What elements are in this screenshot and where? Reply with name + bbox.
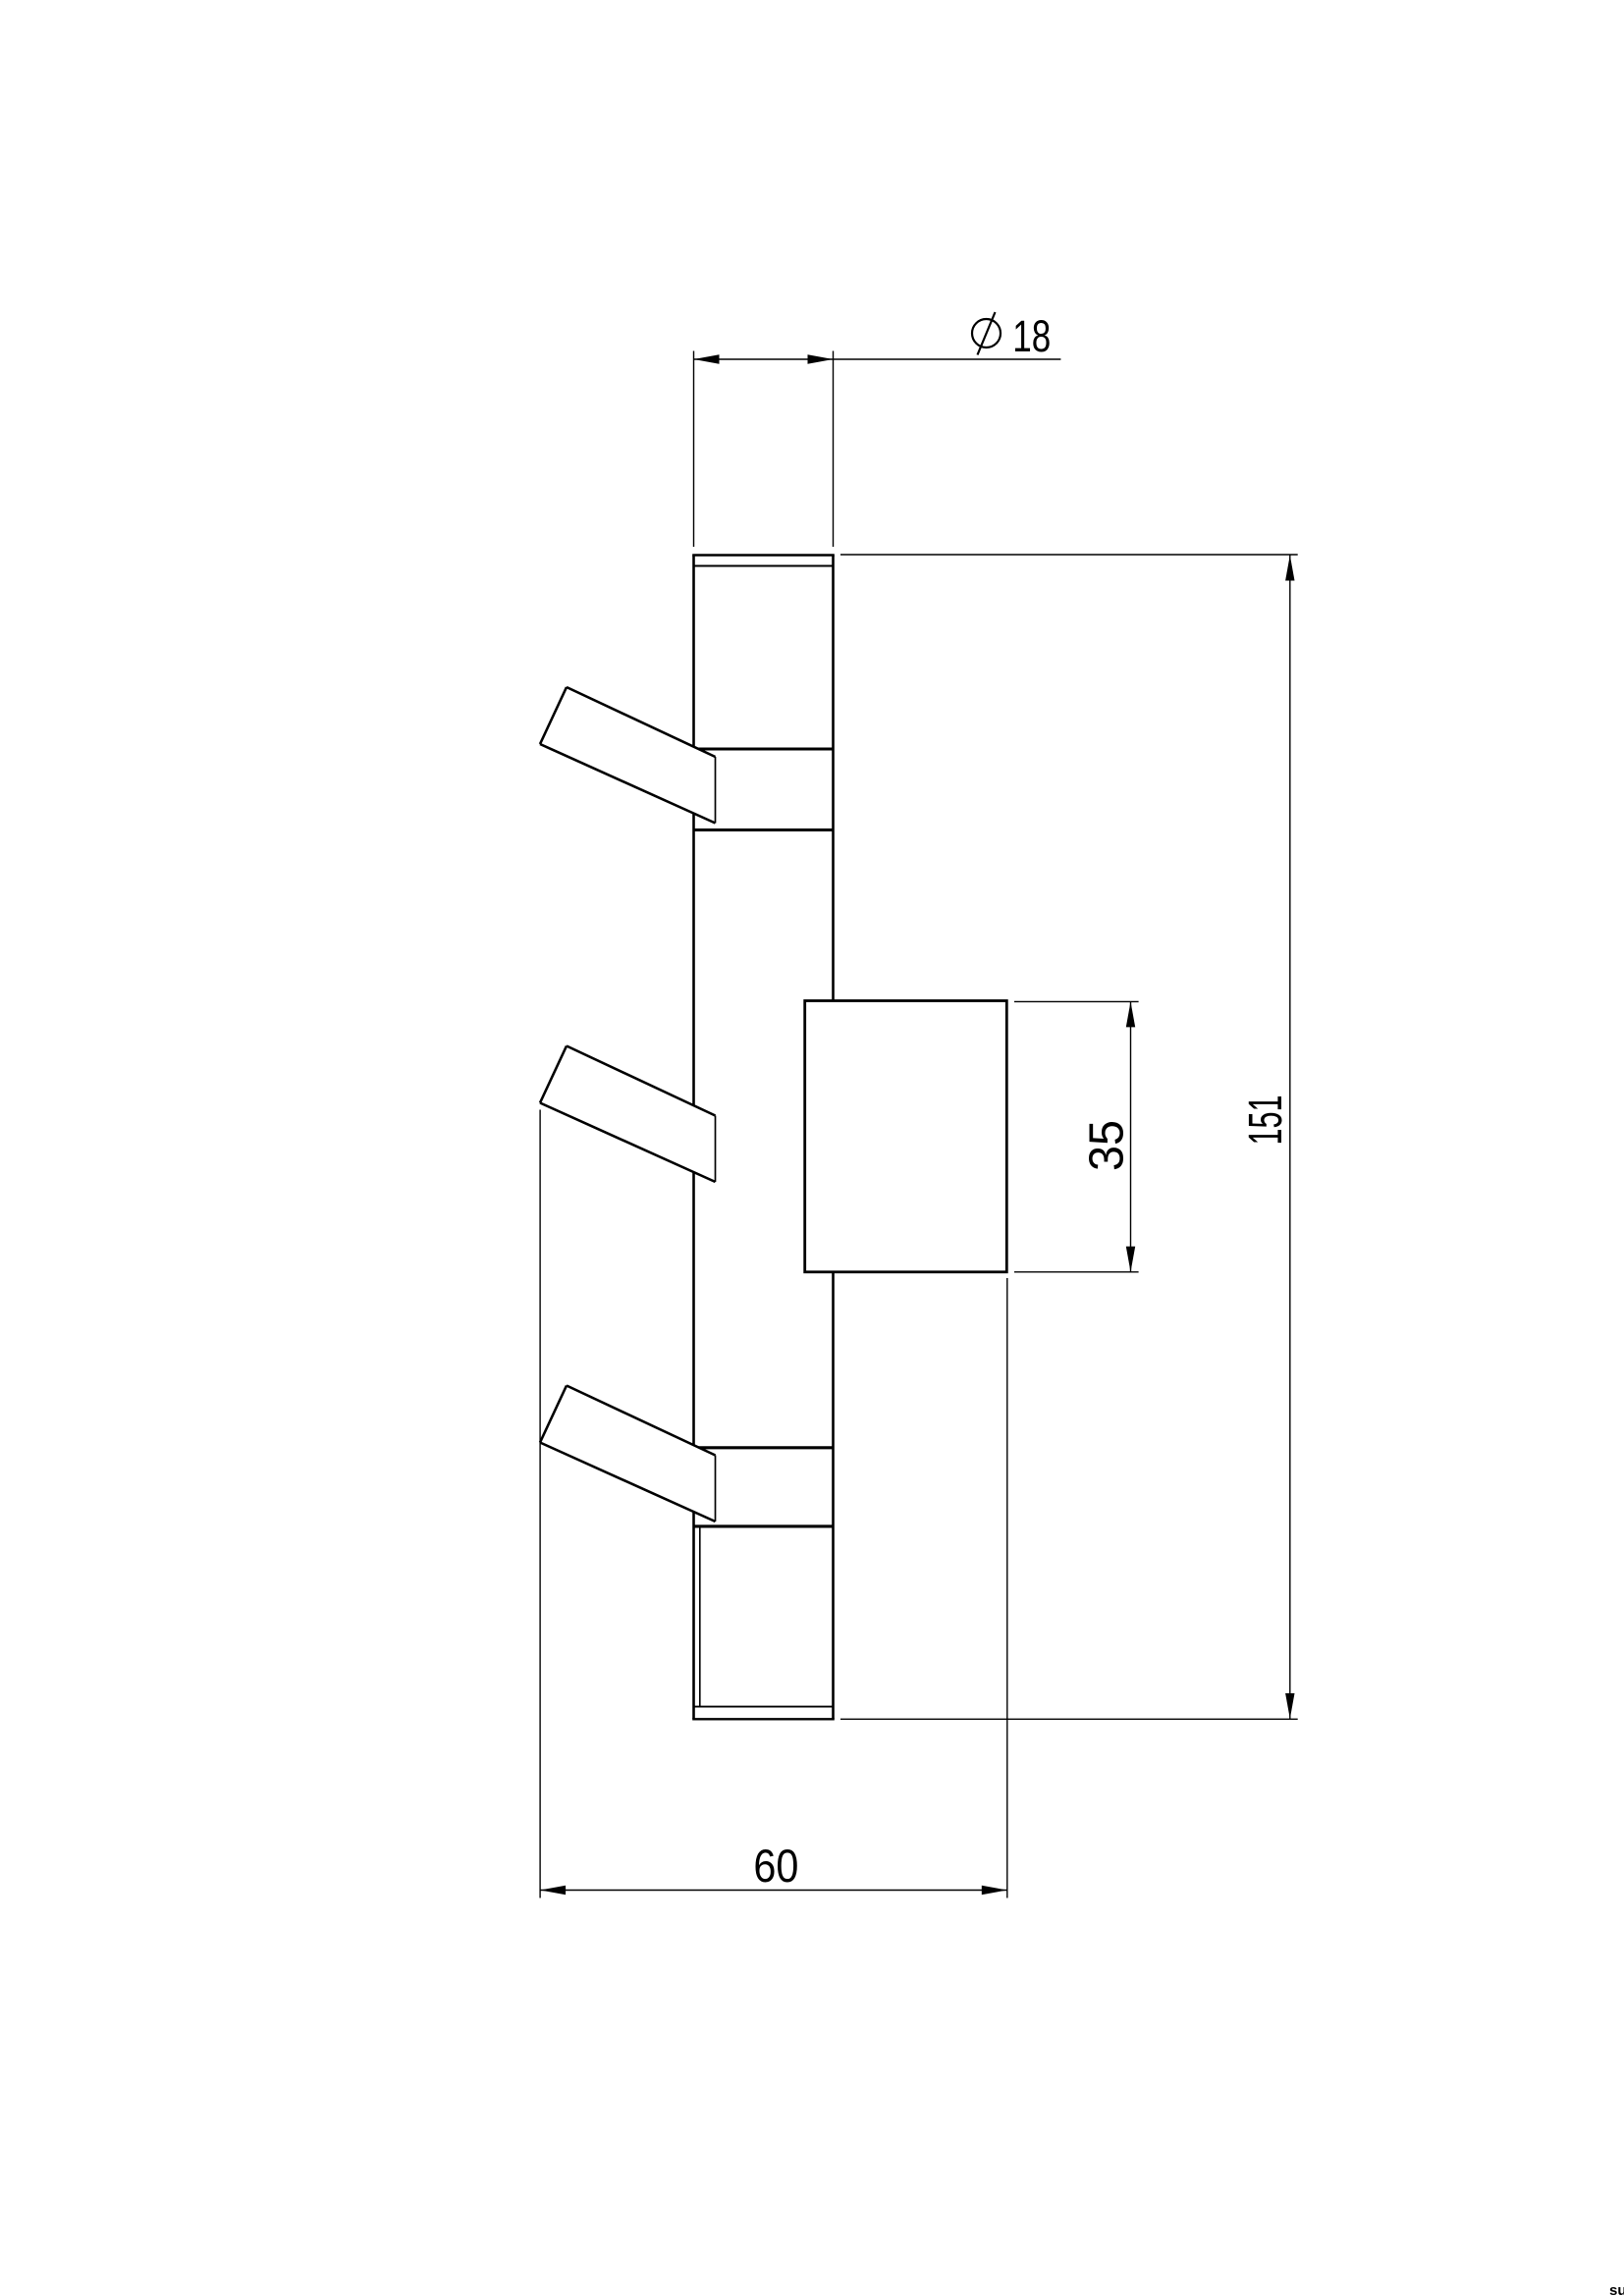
svg-text:35: 35	[1081, 1120, 1134, 1171]
svg-text:151: 151	[1240, 1095, 1292, 1146]
svg-text:su: su	[1609, 2282, 1624, 2296]
svg-text:60: 60	[753, 1840, 798, 1892]
svg-text:18: 18	[1012, 311, 1051, 361]
